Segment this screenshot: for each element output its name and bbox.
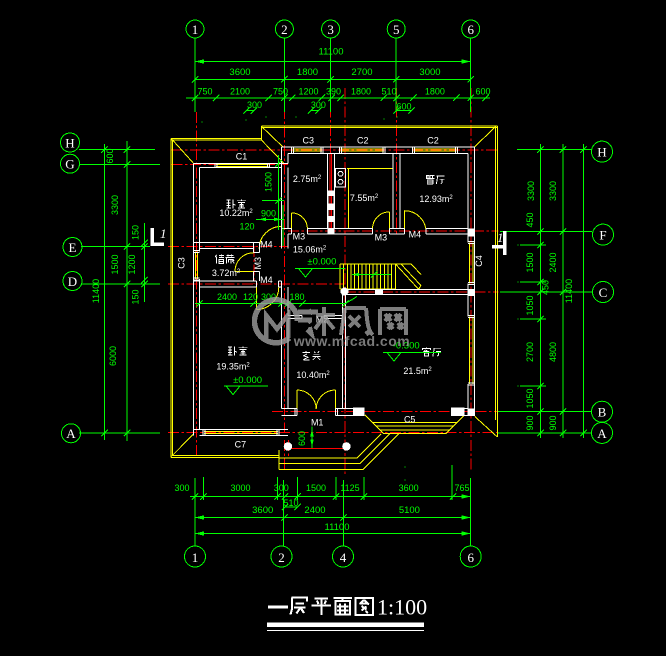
svg-text:150: 150: [131, 225, 141, 240]
svg-text:900: 900: [261, 209, 276, 219]
svg-text:3300: 3300: [110, 195, 120, 215]
svg-text:6: 6: [467, 22, 474, 37]
svg-text:1500: 1500: [264, 172, 274, 192]
svg-text:H: H: [65, 135, 74, 150]
svg-text:120: 120: [239, 222, 254, 232]
svg-text:19.35m2: 19.35m2: [216, 362, 250, 372]
svg-text:F: F: [599, 228, 606, 243]
svg-text:3600: 3600: [399, 483, 419, 493]
svg-text:1200: 1200: [127, 254, 137, 274]
svg-text:3: 3: [327, 22, 334, 37]
svg-text:C2: C2: [357, 136, 369, 146]
svg-text:900: 900: [525, 415, 535, 430]
svg-text:2: 2: [281, 22, 288, 37]
svg-text:900: 900: [548, 415, 558, 430]
svg-text:2.75m2: 2.75m2: [293, 174, 322, 184]
svg-text:450: 450: [525, 212, 535, 227]
svg-text:1: 1: [192, 22, 199, 37]
svg-text:21.5m2: 21.5m2: [403, 366, 432, 376]
svg-text:300: 300: [247, 100, 262, 110]
svg-text:C2: C2: [427, 136, 439, 146]
svg-text:10.22m2: 10.22m2: [219, 208, 253, 218]
svg-text:3000: 3000: [230, 483, 250, 493]
svg-text:600: 600: [297, 431, 307, 446]
svg-text:3300: 3300: [526, 181, 536, 201]
svg-text:1500: 1500: [306, 483, 326, 493]
svg-text:1050: 1050: [525, 295, 535, 315]
svg-text:1: 1: [192, 550, 199, 565]
svg-text:1500: 1500: [525, 252, 535, 272]
svg-text:5100: 5100: [399, 505, 420, 516]
svg-text:11100: 11100: [318, 47, 343, 58]
svg-text:3600: 3600: [229, 67, 250, 78]
svg-text:765: 765: [454, 483, 469, 493]
svg-text:1050: 1050: [525, 388, 535, 408]
svg-text:12.93m2: 12.93m2: [419, 194, 453, 204]
svg-text:6: 6: [467, 550, 474, 565]
svg-text:2400: 2400: [304, 505, 325, 516]
svg-text:C5: C5: [404, 415, 416, 425]
svg-text:1: 1: [497, 230, 504, 245]
svg-text:1500: 1500: [110, 254, 120, 274]
svg-text:510: 510: [283, 498, 298, 508]
svg-text:E: E: [69, 240, 77, 255]
svg-text:C: C: [599, 285, 608, 300]
svg-text:390: 390: [326, 87, 341, 97]
svg-text:±0.000: ±0.000: [307, 257, 336, 268]
svg-text:10.40m2: 10.40m2: [296, 370, 330, 380]
svg-text:M3: M3: [375, 233, 388, 243]
svg-text:M3: M3: [253, 257, 263, 270]
svg-text:M4: M4: [260, 275, 273, 285]
svg-text:±0.000: ±0.000: [233, 375, 262, 386]
svg-text:1800: 1800: [297, 67, 318, 78]
svg-text:2700: 2700: [525, 342, 535, 362]
svg-text:2: 2: [278, 550, 285, 565]
svg-text:3300: 3300: [548, 181, 558, 201]
svg-text:B: B: [598, 405, 607, 420]
svg-text:www.mfcad.com: www.mfcad.com: [293, 333, 410, 349]
svg-text:1125: 1125: [340, 483, 359, 493]
svg-text:4: 4: [340, 550, 347, 565]
svg-text:2700: 2700: [351, 67, 372, 78]
svg-text:H: H: [597, 145, 606, 160]
svg-text:300: 300: [274, 483, 289, 493]
svg-text:3600: 3600: [252, 505, 273, 516]
svg-text:1800: 1800: [425, 87, 445, 97]
svg-text:120: 120: [243, 292, 258, 302]
svg-text:5: 5: [393, 22, 400, 37]
svg-text:4800: 4800: [548, 342, 558, 362]
svg-text:600: 600: [105, 148, 115, 163]
svg-text:M1: M1: [311, 418, 324, 428]
svg-text:1800: 1800: [351, 87, 371, 97]
svg-text:510: 510: [381, 87, 396, 97]
svg-text:300: 300: [311, 100, 326, 110]
svg-text:600: 600: [396, 101, 411, 111]
svg-text:M4: M4: [260, 240, 273, 250]
svg-text:3000: 3000: [419, 67, 440, 78]
svg-text:2100: 2100: [230, 87, 250, 97]
svg-text:600: 600: [475, 87, 490, 97]
svg-text:1: 1: [160, 226, 167, 241]
svg-text:750: 750: [197, 87, 212, 97]
svg-text:11400: 11400: [91, 279, 101, 303]
svg-text:11100: 11100: [324, 522, 349, 533]
svg-text:A: A: [597, 426, 607, 441]
svg-text:C3: C3: [176, 257, 186, 269]
svg-text:G: G: [65, 157, 74, 172]
svg-text:11400: 11400: [564, 279, 574, 303]
svg-text:C1: C1: [236, 152, 248, 162]
svg-text:15.06m2: 15.06m2: [293, 245, 327, 255]
svg-text:A: A: [66, 426, 76, 441]
svg-text:450: 450: [541, 280, 551, 295]
svg-text:180: 180: [289, 292, 304, 302]
svg-text:M3: M3: [293, 232, 306, 242]
svg-text:2400: 2400: [217, 292, 237, 302]
svg-text:1200: 1200: [298, 87, 318, 97]
svg-text:150: 150: [131, 289, 141, 304]
svg-text:1:100: 1:100: [377, 595, 427, 620]
svg-text:C3: C3: [303, 136, 315, 146]
svg-text:6000: 6000: [108, 346, 118, 366]
svg-text:3.72m2: 3.72m2: [212, 268, 241, 278]
svg-text:C4: C4: [474, 255, 484, 267]
svg-text:2400: 2400: [548, 252, 558, 272]
svg-text:M4: M4: [409, 230, 422, 240]
svg-text:750: 750: [273, 87, 288, 97]
svg-text:7.55m2: 7.55m2: [350, 193, 379, 203]
svg-text:300: 300: [174, 483, 189, 493]
svg-text:D: D: [68, 274, 77, 289]
svg-text:C7: C7: [235, 440, 247, 450]
